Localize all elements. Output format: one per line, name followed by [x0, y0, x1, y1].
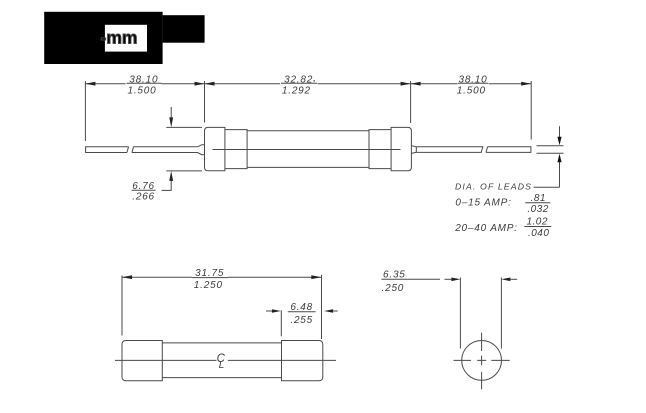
svg-text:0–15 AMP:: 0–15 AMP:	[455, 198, 511, 209]
svg-text:38.10: 38.10	[458, 75, 487, 86]
svg-text:31.75: 31.75	[195, 268, 224, 279]
svg-text:1.500: 1.500	[457, 86, 486, 97]
svg-text:.250: .250	[382, 283, 405, 294]
svg-text:.255: .255	[290, 315, 313, 326]
svg-text:20–40 AMP:: 20–40 AMP:	[454, 223, 518, 234]
svg-text:.266: .266	[132, 191, 155, 202]
svg-text:1.250: 1.250	[194, 280, 223, 291]
svg-text:32.82: 32.82	[284, 75, 313, 86]
svg-text:6.35: 6.35	[383, 269, 406, 280]
svg-text:L: L	[219, 360, 225, 371]
svg-text:.81: .81	[531, 193, 546, 204]
svg-text:-mm: -mm	[101, 28, 138, 48]
svg-text:1.292: 1.292	[282, 86, 311, 97]
svg-text:.032: .032	[527, 204, 548, 215]
svg-text:DIA. OF LEADS: DIA. OF LEADS	[455, 182, 532, 192]
svg-text:1.500: 1.500	[127, 86, 156, 97]
svg-text:.040: .040	[528, 228, 549, 239]
svg-text:38.10: 38.10	[129, 75, 158, 86]
